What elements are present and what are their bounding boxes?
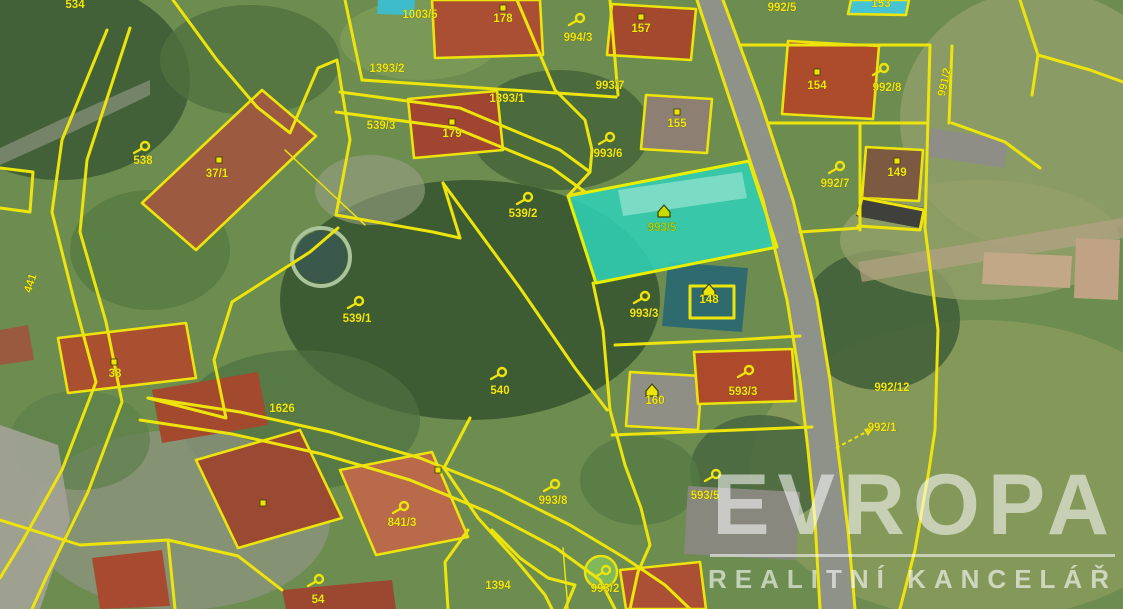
building-marker	[674, 109, 680, 115]
building-marker	[638, 14, 644, 20]
grass-symbol	[569, 14, 584, 25]
parcel-label: 1626	[269, 403, 295, 415]
parcel-label: 1394	[485, 580, 511, 592]
parcel-label: 993/3	[630, 308, 659, 320]
parcel-label: 37/1	[206, 168, 229, 180]
parcel-label: 993/6	[594, 148, 623, 160]
building	[432, 0, 543, 58]
grass-symbol	[308, 575, 323, 586]
parcel-label: 178	[493, 13, 513, 25]
parcel-label: 593/3	[729, 386, 758, 398]
parcel-label: 1393/2	[369, 63, 404, 75]
parcel-label: 993/5	[648, 222, 677, 234]
parcel-label: 992/12	[874, 382, 909, 394]
parcel-label: 593/5	[691, 490, 720, 502]
cadastral-map[interactable]: 53453837/14411003/5178994/31571393/21393…	[0, 0, 1123, 609]
parcel-label: 539/1	[343, 313, 372, 325]
building-marker	[260, 500, 266, 506]
parcel-label: 538	[133, 155, 153, 167]
vegetation-patch	[0, 0, 190, 180]
grass-symbol-tail	[308, 582, 315, 586]
grass-symbol-tail	[544, 487, 551, 491]
building-marker	[814, 69, 820, 75]
vegetation-layer	[0, 0, 1123, 609]
grass-symbol	[829, 162, 844, 173]
parcel-label: 540	[490, 385, 509, 397]
parcel-label: 992/7	[821, 178, 850, 190]
grass-symbol-circle	[576, 14, 584, 22]
vegetation-patch	[315, 155, 425, 225]
grass-symbol-tail	[569, 21, 576, 25]
parcel-label: 441	[22, 272, 40, 295]
parcel-label: 154	[807, 80, 827, 92]
parcel-label: 539/3	[367, 120, 396, 132]
parcel-label: 993/2	[591, 583, 620, 595]
parcel-label: 148	[699, 294, 719, 306]
parcel-label: 539/2	[509, 208, 538, 220]
parcel-label: 992/8	[873, 82, 902, 94]
parcel-label: 841/3	[388, 517, 417, 529]
grass-symbol-circle	[836, 162, 844, 170]
parcel-label: 1003/5	[402, 9, 438, 21]
building	[92, 550, 170, 609]
parcel-label: 38	[109, 368, 122, 380]
parcel-label: 157	[631, 23, 650, 35]
parcel-label: 993/8	[539, 495, 568, 507]
building	[782, 41, 879, 119]
parcel-label: 534	[65, 0, 85, 11]
building-marker	[111, 359, 117, 365]
map-canvas: 53453837/14411003/5178994/31571393/21393…	[0, 0, 1123, 609]
building	[607, 4, 696, 60]
parcel-boundary	[492, 530, 575, 609]
parcel-label: 993/7	[596, 80, 625, 92]
grass-symbol-circle	[315, 575, 323, 583]
grass-symbol-tail	[829, 169, 836, 173]
building-marker	[500, 5, 506, 11]
grass-symbol-circle	[551, 480, 559, 488]
grass-symbol	[544, 480, 559, 491]
parcel-label: 155	[667, 118, 687, 130]
building	[982, 252, 1072, 288]
parcel-label: 1393/1	[489, 93, 525, 105]
parcel-label: 153	[871, 0, 890, 10]
building-marker	[435, 467, 441, 473]
grass-symbol-circle	[880, 64, 888, 72]
vegetation-patch	[580, 435, 700, 525]
building	[58, 323, 196, 393]
parcel-label: 160	[645, 395, 664, 407]
parcel-label: 992/5	[768, 2, 797, 14]
parcel-label: 994/3	[564, 32, 593, 44]
building	[0, 325, 34, 365]
parcel-label: 54	[312, 594, 325, 606]
parcel-label: 149	[887, 167, 906, 179]
building	[340, 452, 468, 555]
building-marker	[894, 158, 900, 164]
building-marker	[216, 157, 222, 163]
building-marker	[449, 119, 455, 125]
parcel-label: 992/1	[868, 422, 897, 434]
parcel-label: 179	[442, 128, 461, 140]
building	[1074, 238, 1120, 300]
building	[282, 580, 396, 609]
